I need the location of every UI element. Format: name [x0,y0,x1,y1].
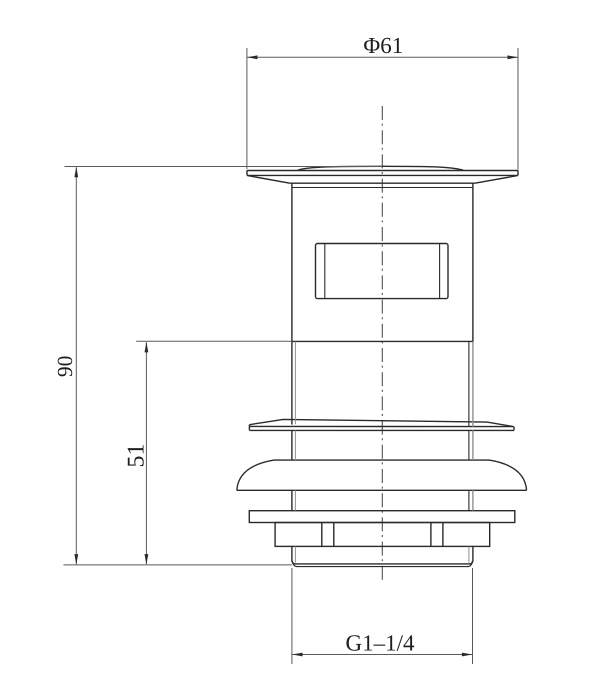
svg-text:90: 90 [53,356,77,378]
svg-text:G1–1/4: G1–1/4 [346,631,416,656]
svg-text:Φ61: Φ61 [363,33,403,58]
svg-text:51: 51 [124,444,150,468]
